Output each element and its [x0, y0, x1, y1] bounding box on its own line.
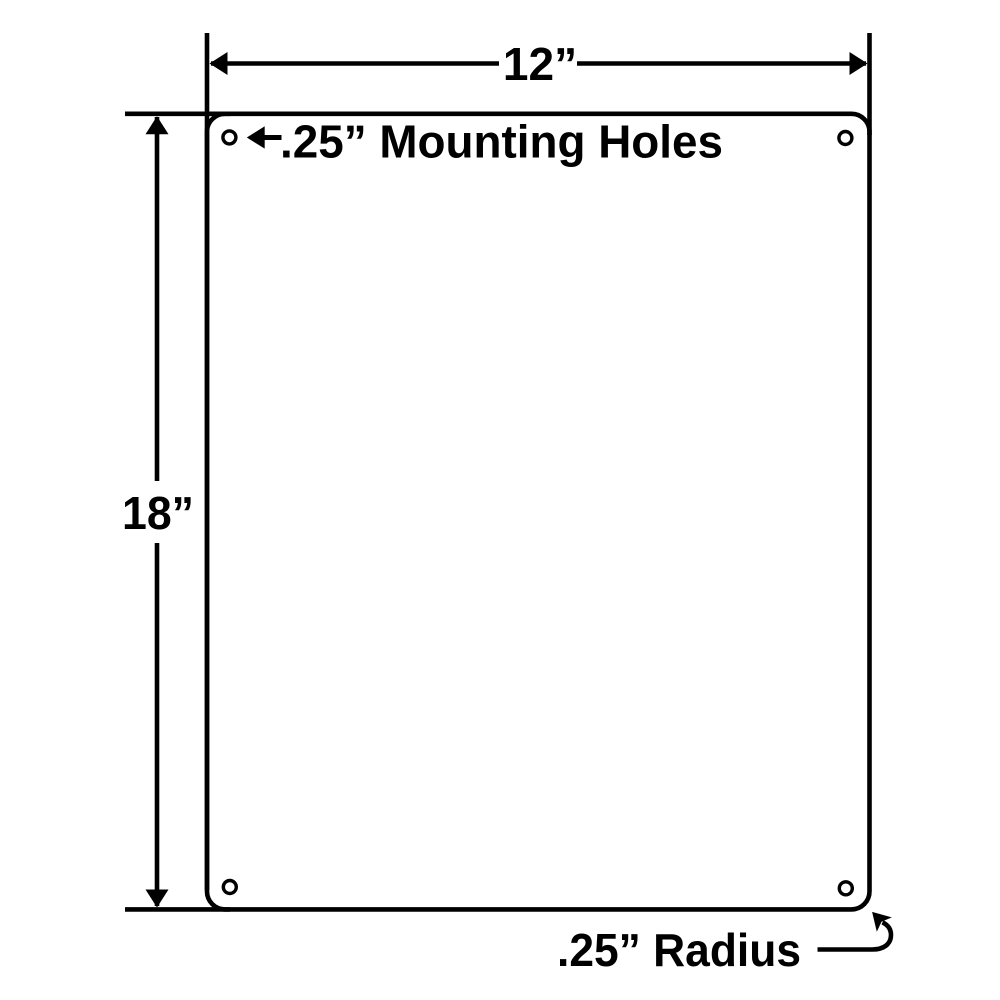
svg-text:.25” Radius: .25” Radius: [557, 924, 801, 976]
svg-text:.25” Mounting Holes: .25” Mounting Holes: [280, 116, 723, 168]
svg-text:12”: 12”: [503, 38, 577, 90]
svg-text:18”: 18”: [122, 487, 194, 539]
